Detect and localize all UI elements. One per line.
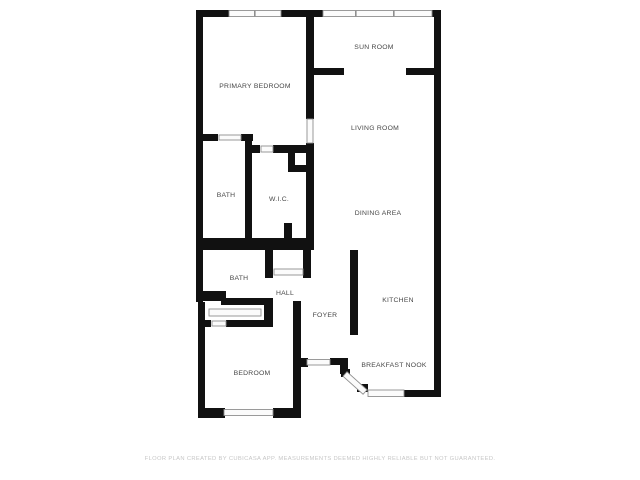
wall — [196, 238, 314, 250]
wall — [306, 143, 314, 238]
wall — [203, 320, 211, 327]
wall — [226, 320, 266, 327]
room-label-kitchen: KITCHEN — [382, 297, 414, 304]
wall — [281, 10, 323, 17]
room-label-living-room: LIVING ROOM — [351, 125, 399, 132]
walls-group — [196, 10, 441, 418]
wall — [288, 165, 306, 172]
door-opening — [307, 119, 313, 143]
wall — [203, 134, 218, 141]
room-label-bath-2: BATH — [230, 275, 249, 282]
window — [224, 410, 273, 416]
bay-window — [343, 372, 367, 395]
wall — [293, 301, 301, 418]
wall — [314, 68, 344, 75]
window-mullion — [393, 11, 395, 17]
wall — [196, 10, 203, 302]
window-mullion — [355, 11, 357, 17]
window — [368, 390, 404, 397]
wall — [245, 134, 252, 238]
wall — [198, 408, 225, 418]
door-opening — [307, 360, 330, 366]
room-label-dining-area: DINING AREA — [355, 210, 402, 217]
wall — [284, 223, 292, 238]
floor-plan-drawing: PRIMARY BEDROOM SUN ROOM LIVING ROOM BAT… — [0, 0, 640, 480]
wall — [350, 250, 358, 335]
window — [323, 11, 432, 17]
room-label-bath-1: BATH — [217, 192, 236, 199]
wall — [198, 302, 205, 414]
door-opening — [274, 269, 303, 275]
room-label-hall: HALL — [276, 290, 294, 297]
wall — [404, 390, 441, 397]
door-opening — [212, 321, 226, 326]
room-label-foyer: FOYER — [313, 312, 338, 319]
window-mullion — [254, 11, 256, 17]
room-label-primary-bedroom: PRIMARY BEDROOM — [219, 83, 291, 90]
door-opening — [219, 135, 241, 140]
wall — [252, 145, 260, 153]
wall — [406, 68, 434, 75]
room-label-sun-room: SUN ROOM — [354, 44, 393, 51]
wall — [434, 10, 441, 397]
room-label-bedroom: BEDROOM — [234, 370, 271, 377]
wall — [273, 145, 306, 153]
disclaimer-text: FLOOR PLAN CREATED BY CUBICASA APP. MEAS… — [145, 456, 496, 462]
floor-plan-page: PRIMARY BEDROOM SUN ROOM LIVING ROOM BAT… — [0, 0, 640, 480]
room-label-breakfast-nook: BREAKFAST NOOK — [361, 362, 427, 369]
room-label-wic: W.I.C. — [269, 196, 289, 203]
wall — [306, 17, 314, 119]
closet-door — [209, 309, 261, 316]
wall — [265, 267, 273, 278]
wall — [303, 250, 311, 270]
door-opening — [261, 146, 273, 152]
